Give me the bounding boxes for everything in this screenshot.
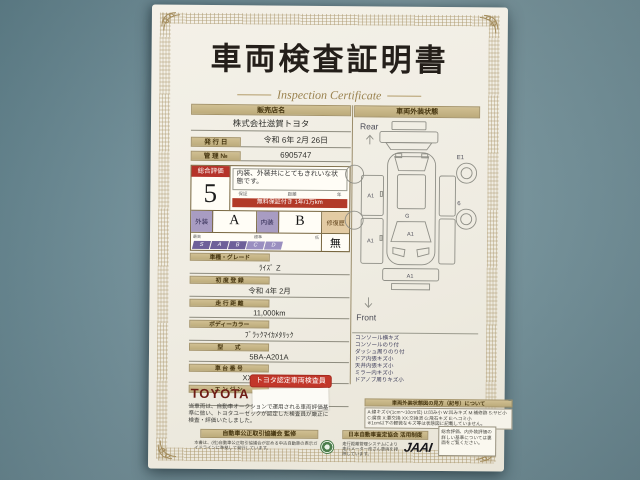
exterior-grade-value: A <box>213 211 257 232</box>
inspection-certificate-sheet: 車両検査証明書 Inspection Certificate 販売店名 株式会社… <box>148 4 508 471</box>
mark-side-left-upper: A1 <box>367 193 374 199</box>
interior-condition-legend: コンソール横キズ コンソールのり付 ダッシュ周りのり付 ドア内張キズ小 天井内張… <box>352 332 478 385</box>
warranty-cap-right: 年 <box>337 192 342 198</box>
spec-value: 5BA-A201A <box>189 351 349 363</box>
mark-windshield: A1 <box>407 232 414 238</box>
fair-trade-council-band: 自動車公正取引協議会 監修 <box>200 429 318 439</box>
vehicle-info-column: 販売店名 株式会社滋賀トヨタ 発 行 日 令和 6年 2月 26日 管 理 № … <box>189 104 352 407</box>
scale-segment: B <box>228 241 247 249</box>
exterior-condition-header: 車両外装状態 <box>354 105 480 118</box>
scale-cap-mid: 標準 <box>254 234 262 240</box>
ornate-border-right <box>485 15 500 461</box>
exterior-grade-label: 外装 <box>191 211 213 232</box>
scale-cap-left: 最高 <box>193 234 201 240</box>
scale-segment: A <box>210 241 229 249</box>
scale-segment: C <box>246 241 265 249</box>
appraisal-institute-band: 日本自動車査定協会 活用制度 <box>342 430 428 440</box>
overall-evaluation-box: 総合評価 5 内装、外装共にとてもきれいな状態です。 保証 距離 年 無料保証付… <box>190 165 351 252</box>
issue-date-row: 発 行 日 令和 6年 2月 26日 <box>191 133 351 148</box>
grade-scale-captions: 最高 標準 低 <box>193 234 319 241</box>
inspection-statement: 当車両は、自動車オークションで運用される車両評価基準に倣い、トヨタユーゼックが認… <box>188 404 328 426</box>
inspector-stamp: トヨタ認定車両検査員 <box>251 375 331 387</box>
repair-history-value: 無 <box>321 234 349 251</box>
mark-wheel-right: 6 <box>457 201 461 207</box>
certificate-title: 車両検査証明書 <box>151 32 507 80</box>
control-number-label: 管 理 № <box>191 151 241 161</box>
certificate-subtitle: Inspection Certificate <box>151 86 507 104</box>
grade-row: 外装 A 内装 B 修復歴 <box>191 211 349 234</box>
mark-wheel-top-right: E1 <box>457 155 465 161</box>
issue-date-value: 令和 6年 2月 26日 <box>241 133 351 148</box>
fair-trade-council-note: 本書は、(社)自動車公正取引協議会が定める中古自動車の表示ガイドラインに準拠して… <box>194 440 318 451</box>
grade-scale-segments: S A B C D <box>193 241 319 250</box>
condition-comment: 内装、外装共にとてもきれいな状態です。 <box>232 168 347 191</box>
fair-trade-emblem-icon <box>320 440 334 454</box>
legend-item: ドアノブ周りキズ小 <box>355 377 478 385</box>
issue-date-label: 発 行 日 <box>191 137 241 147</box>
grade-scale-row: 最高 標準 低 S A B C D 無 <box>191 233 349 251</box>
mark-side-left-lower: A1 <box>367 238 374 244</box>
mark-front-bumper: A1 <box>407 274 414 280</box>
warranty-cap-mid: 距離 <box>288 192 297 198</box>
symbol-guide-header: 車両外装状態図の見方（記号）について <box>365 398 513 407</box>
mark-roof: G <box>405 214 409 220</box>
jaai-logo: JAAI <box>403 440 433 455</box>
subtitle-rule-right <box>387 96 421 97</box>
car-unfold-diagram-icon: Rear Front E1 6 A1 A1 G A1 A1 <box>352 117 480 332</box>
flourish-corner-icon <box>156 431 186 461</box>
ornate-border-left <box>156 13 171 459</box>
rear-direction-label: Rear <box>360 121 379 131</box>
spec-field-first-registration: 初 度 登 録 令和 4年 2月 <box>189 276 349 298</box>
warranty-cap-left: 保証 <box>238 191 247 197</box>
exterior-condition-column: 車両外装状態 <box>350 105 480 385</box>
spec-value: 令和 4年 2月 <box>189 284 349 298</box>
spec-field-model-code: 型 式 5BA-A201A <box>189 343 349 363</box>
evaluation-comment-area: 内装、外装共にとてもきれいな状態です。 保証 距離 年 無料保証付き 1年/1万… <box>230 166 349 211</box>
subtitle-text: Inspection Certificate <box>277 88 381 104</box>
back-page-reference-box: 総合評価、内外装評価の詳しい基準については裏面をご覧ください。 <box>438 426 496 457</box>
spec-value: 11,000km <box>189 307 349 319</box>
scale-segment: S <box>192 241 211 249</box>
warranty-captions: 保証 距離 年 <box>232 190 347 198</box>
toyota-wordmark: TOYOTA <box>191 386 250 402</box>
car-condition-diagram: Rear Front E1 6 A1 A1 G A1 A1 <box>352 117 480 332</box>
interior-grade-value: B <box>279 212 323 233</box>
dealer-name-value: 株式会社滋賀トヨタ <box>191 115 351 132</box>
appraisal-institute-note: 走行距離管理システムにより走行メーター改ざん車両を排除しています。 <box>342 441 400 457</box>
overall-score-value: 5 <box>191 177 229 210</box>
grade-scale: 最高 標準 低 S A B C D <box>191 233 321 251</box>
overall-score-cell: 総合評価 5 <box>191 166 230 210</box>
scale-cap-right: 低 <box>315 235 319 241</box>
ornate-border-top <box>162 13 498 27</box>
spec-field-model-grade: 車種・グレード ﾗｲｽﾞ Z <box>190 253 350 275</box>
spec-value: ﾌﾞﾗｯｸﾏｲｶﾒﾀﾘｯｸ <box>189 328 349 342</box>
control-number-row: 管 理 № 6905747 <box>191 149 351 162</box>
spec-value: ﾗｲｽﾞ Z <box>190 261 350 275</box>
subtitle-rule-left <box>237 94 271 95</box>
front-direction-label: Front <box>356 312 377 322</box>
overall-score-label: 総合評価 <box>192 166 230 177</box>
interior-grade-label: 内装 <box>257 211 279 232</box>
spec-field-mileage: 走 行 距 離 11,000km <box>189 299 349 319</box>
evaluation-top-row: 総合評価 5 内装、外装共にとてもきれいな状態です。 保証 距離 年 無料保証付… <box>191 166 349 212</box>
warranty-band: 無料保証付き 1年/1万km <box>232 198 347 208</box>
scale-segment: D <box>264 241 283 249</box>
spec-field-body-color: ボディーカラー ﾌﾞﾗｯｸﾏｲｶﾒﾀﾘｯｸ <box>189 320 349 342</box>
control-number-value: 6905747 <box>241 149 351 162</box>
